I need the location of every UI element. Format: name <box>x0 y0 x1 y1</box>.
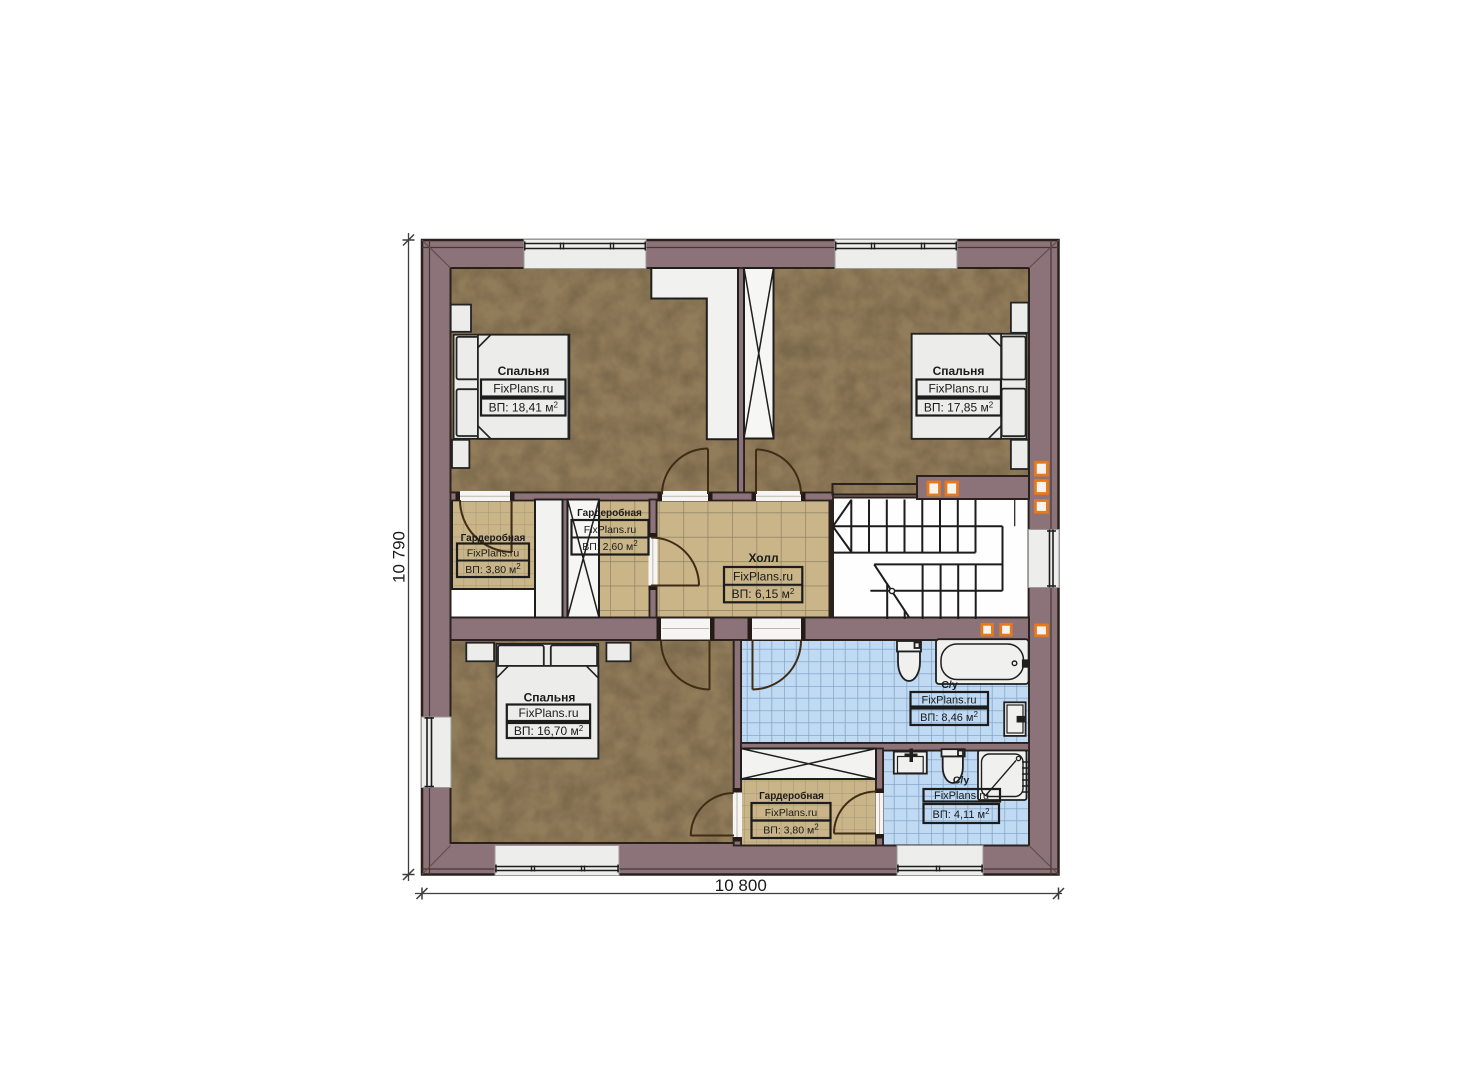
svg-text:Гардеробная: Гардеробная <box>759 790 824 802</box>
svg-text:ВП: 3,80 м2: ВП: 3,80 м2 <box>763 823 819 837</box>
svg-text:FixPlans.ru: FixPlans.ru <box>765 807 818 819</box>
svg-text:FixPlans.ru: FixPlans.ru <box>467 548 520 560</box>
svg-text:Холл: Холл <box>748 551 778 565</box>
svg-text:ВП: 18,41 м2: ВП: 18,41 м2 <box>489 401 559 415</box>
svg-text:FixPlans.ru: FixPlans.ru <box>518 706 578 720</box>
svg-text:FixPlans.ru: FixPlans.ru <box>921 695 976 707</box>
svg-text:ВП: 2,60 м2: ВП: 2,60 м2 <box>582 539 638 553</box>
svg-text:FixPlans.ru: FixPlans.ru <box>493 382 553 396</box>
svg-text:Спальня: Спальня <box>524 690 576 704</box>
svg-text:С/у: С/у <box>941 679 958 691</box>
svg-text:FixPlans.ru: FixPlans.ru <box>733 570 793 584</box>
svg-text:FixPlans.ru: FixPlans.ru <box>584 524 637 536</box>
svg-text:Спальня: Спальня <box>933 364 985 378</box>
svg-text:FixPlans.ru: FixPlans.ru <box>934 790 989 802</box>
svg-text:10 790: 10 790 <box>390 531 409 583</box>
svg-text:Гардеробная: Гардеробная <box>461 532 526 544</box>
svg-text:ВП: 17,85 м2: ВП: 17,85 м2 <box>924 401 994 415</box>
svg-text:Спальня: Спальня <box>498 364 550 378</box>
svg-text:С/у: С/у <box>953 775 970 787</box>
svg-text:ВП: 8,46 м2: ВП: 8,46 м2 <box>920 710 978 724</box>
svg-text:FixPlans.ru: FixPlans.ru <box>928 382 988 396</box>
svg-text:ВП: 6,15 м2: ВП: 6,15 м2 <box>732 587 795 601</box>
svg-text:ВП: 3,80 м2: ВП: 3,80 м2 <box>465 562 521 576</box>
svg-text:10 800: 10 800 <box>715 876 767 895</box>
svg-text:ВП: 16,70 м2: ВП: 16,70 м2 <box>514 724 584 738</box>
svg-text:Гардеробная: Гардеробная <box>577 507 642 519</box>
svg-text:ВП: 4,11 м2: ВП: 4,11 м2 <box>932 807 990 821</box>
